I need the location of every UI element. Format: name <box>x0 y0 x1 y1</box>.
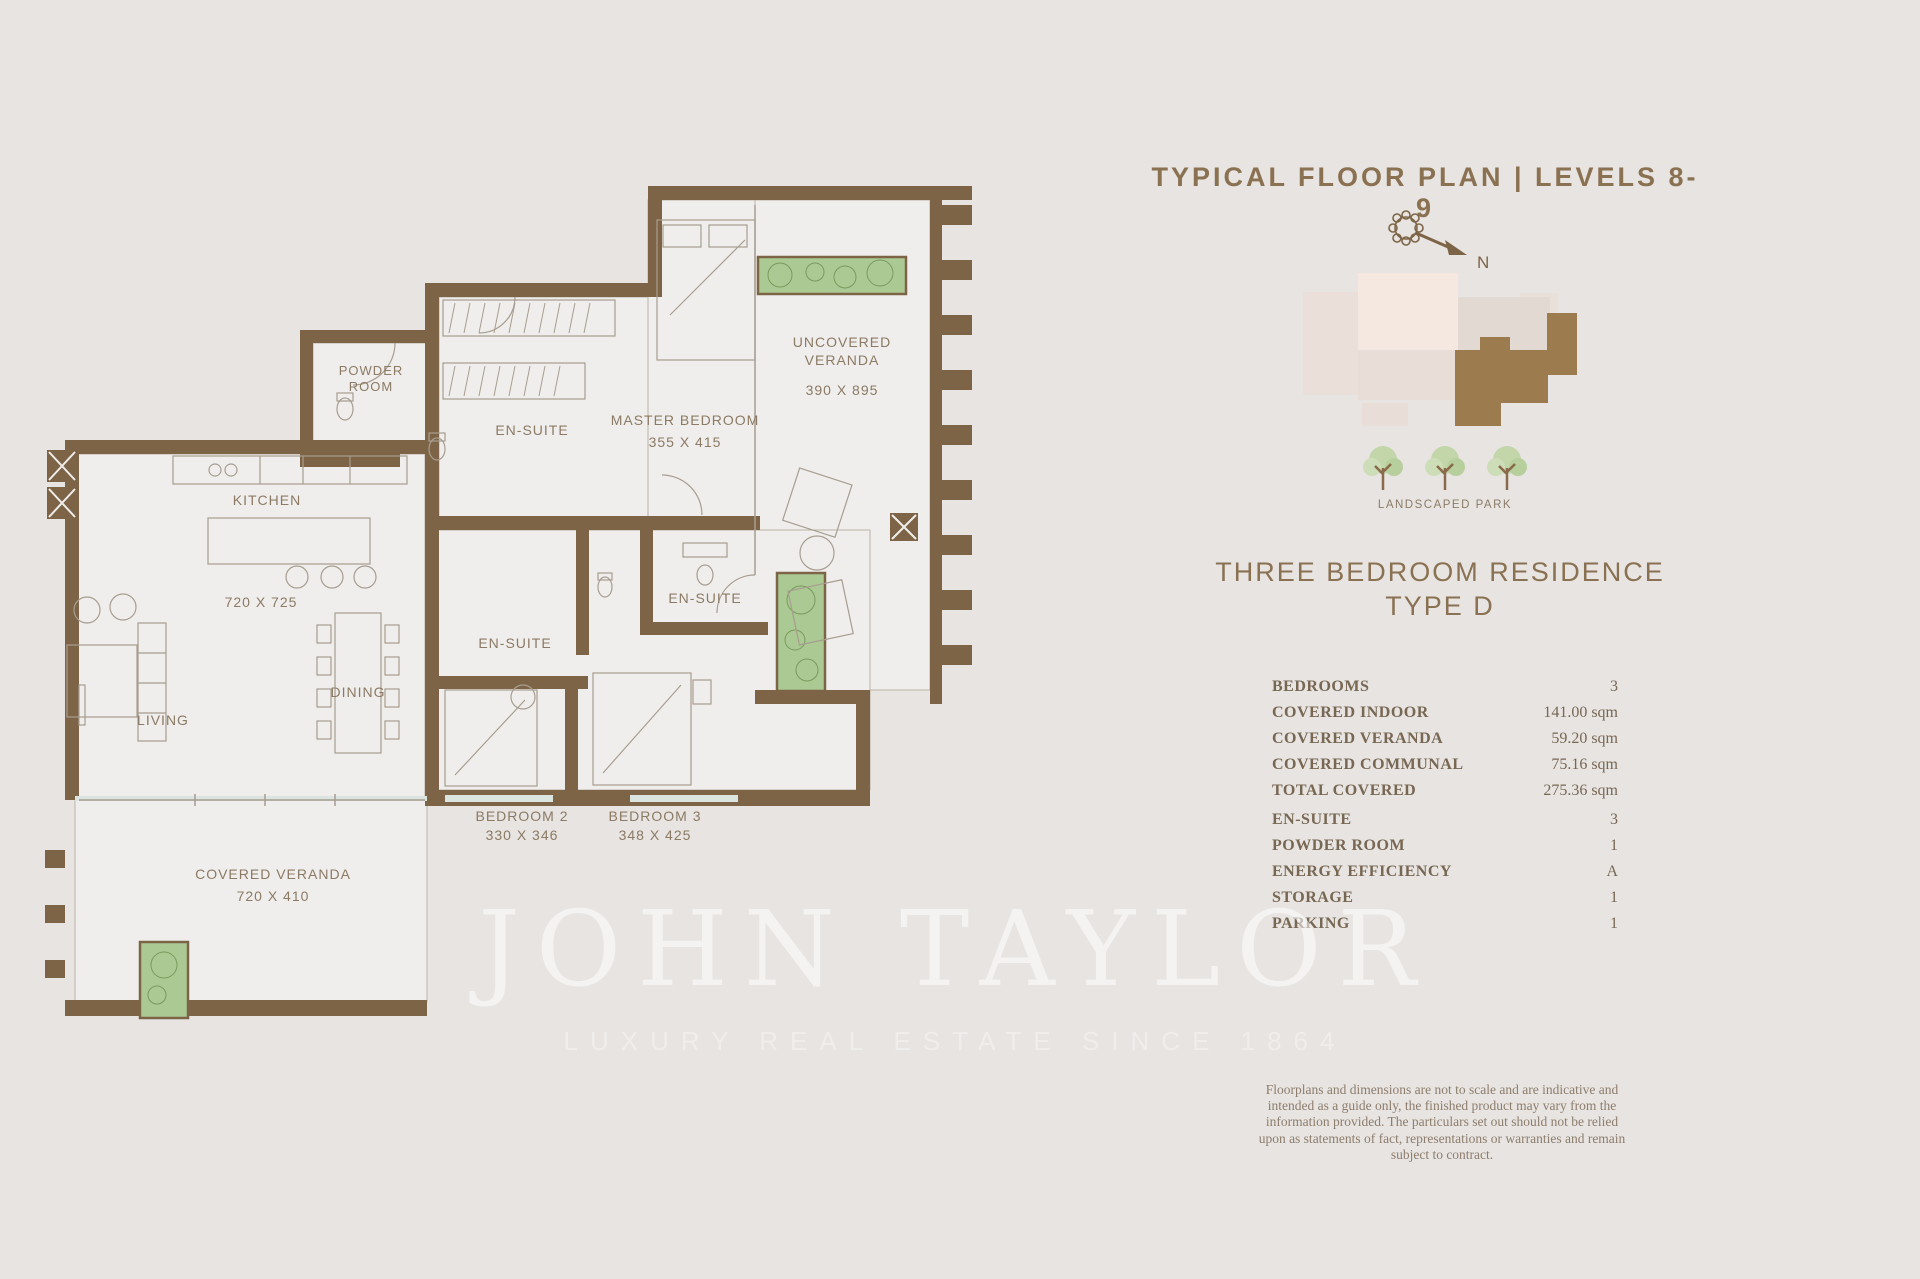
dining-label: DINING <box>331 684 386 700</box>
spec-label: ENERGY EFFICIENCY <box>1272 863 1452 881</box>
spec-row: TOTAL COVERED 275.36 sqm <box>1272 782 1618 808</box>
spec-row: COVERED COMMUNAL 75.16 sqm <box>1272 756 1618 782</box>
bedroom2-label: BEDROOM 2 <box>475 808 568 824</box>
floor-plan-drawing: KITCHEN 720 X 725 LIVING DINING POWDER R… <box>45 145 985 1045</box>
floor-plan-page: KITCHEN 720 X 725 LIVING DINING POWDER R… <box>0 0 1920 1279</box>
site-plan-block <box>1358 350 1458 400</box>
powder-room-label-line2: ROOM <box>349 379 393 394</box>
bedroom3-dim-label: 348 X 425 <box>619 827 692 843</box>
kitchen-dim-label: 720 X 725 <box>225 594 298 610</box>
spec-value: 75.16 sqm <box>1551 756 1618 774</box>
spec-label: BEDROOMS <box>1272 678 1369 696</box>
spec-row: POWDER ROOM 1 <box>1272 837 1618 863</box>
spec-row: BEDROOMS 3 <box>1272 678 1618 704</box>
ensuite-bedroom3-label: EN-SUITE <box>668 590 741 606</box>
bedroom2-dim-label: 330 X 346 <box>486 827 559 843</box>
landscaped-park-caption: LANDSCAPED PARK <box>1345 499 1545 511</box>
spec-row: STORAGE 1 <box>1272 889 1618 915</box>
spec-value: 59.20 sqm <box>1551 730 1618 748</box>
site-plan-diagram <box>1295 265 1645 440</box>
kitchen-label: KITCHEN <box>233 492 301 508</box>
spec-row: ENERGY EFFICIENCY A <box>1272 863 1618 889</box>
spec-value: 3 <box>1610 811 1618 829</box>
spec-row: COVERED VERANDA 59.20 sqm <box>1272 730 1618 756</box>
uncovered-veranda-label-line2: VERANDA <box>805 352 880 368</box>
spec-row: PARKING 1 <box>1272 915 1618 941</box>
disclaimer-text: Floorplans and dimensions are not to sca… <box>1258 1082 1626 1163</box>
trees-icon <box>1345 438 1545 492</box>
site-plan-block <box>1362 403 1408 426</box>
spec-label: STORAGE <box>1272 889 1353 907</box>
spec-label: COVERED VERANDA <box>1272 730 1443 748</box>
spec-row: EN-SUITE 3 <box>1272 811 1618 837</box>
spec-table: BEDROOMS 3 COVERED INDOOR 141.00 sqm COV… <box>1272 678 1618 941</box>
spec-value: 141.00 sqm <box>1543 704 1618 722</box>
site-plan-unit-highlight <box>1455 350 1548 403</box>
site-plan-unit-highlight <box>1547 313 1577 375</box>
spec-row: COVERED INDOOR 141.00 sqm <box>1272 704 1618 730</box>
spec-value: A <box>1606 863 1618 881</box>
spec-value: 275.36 sqm <box>1543 782 1618 800</box>
spec-value: 1 <box>1610 915 1618 933</box>
compass-icon: N <box>1383 206 1503 274</box>
ensuite-bedroom2-label: EN-SUITE <box>478 635 551 651</box>
ensuite-master-label: EN-SUITE <box>495 422 568 438</box>
spec-value: 1 <box>1610 837 1618 855</box>
spec-label: TOTAL COVERED <box>1272 782 1416 800</box>
living-label: LIVING <box>137 712 189 728</box>
spec-value: 1 <box>1610 889 1618 907</box>
site-plan-block <box>1303 292 1358 395</box>
site-plan-unit-highlight <box>1480 337 1510 350</box>
spec-value: 3 <box>1610 678 1618 696</box>
covered-veranda-dim-label: 720 X 410 <box>237 888 310 904</box>
spec-label: COVERED COMMUNAL <box>1272 756 1464 774</box>
residence-title-line1: THREE BEDROOM RESIDENCE <box>1210 556 1670 590</box>
bedroom3-label: BEDROOM 3 <box>608 808 701 824</box>
residence-title: THREE BEDROOM RESIDENCE TYPE D <box>1210 556 1670 624</box>
covered-veranda-label: COVERED VERANDA <box>195 866 351 882</box>
uncovered-veranda-dim-label: 390 X 895 <box>806 382 879 398</box>
master-bedroom-label: MASTER BEDROOM <box>611 412 760 428</box>
spec-label: COVERED INDOOR <box>1272 704 1429 722</box>
residence-title-line2: TYPE D <box>1210 590 1670 624</box>
spec-label: EN-SUITE <box>1272 811 1352 829</box>
spec-label: PARKING <box>1272 915 1350 933</box>
site-plan-block <box>1358 273 1458 350</box>
powder-room-label-line1: POWDER <box>339 363 404 378</box>
landscaped-park: LANDSCAPED PARK <box>1345 438 1545 511</box>
site-plan-unit-highlight <box>1455 398 1501 426</box>
uncovered-veranda-label-line1: UNCOVERED <box>793 334 891 350</box>
spec-label: POWDER ROOM <box>1272 837 1405 855</box>
master-bedroom-dim-label: 355 X 415 <box>649 434 722 450</box>
